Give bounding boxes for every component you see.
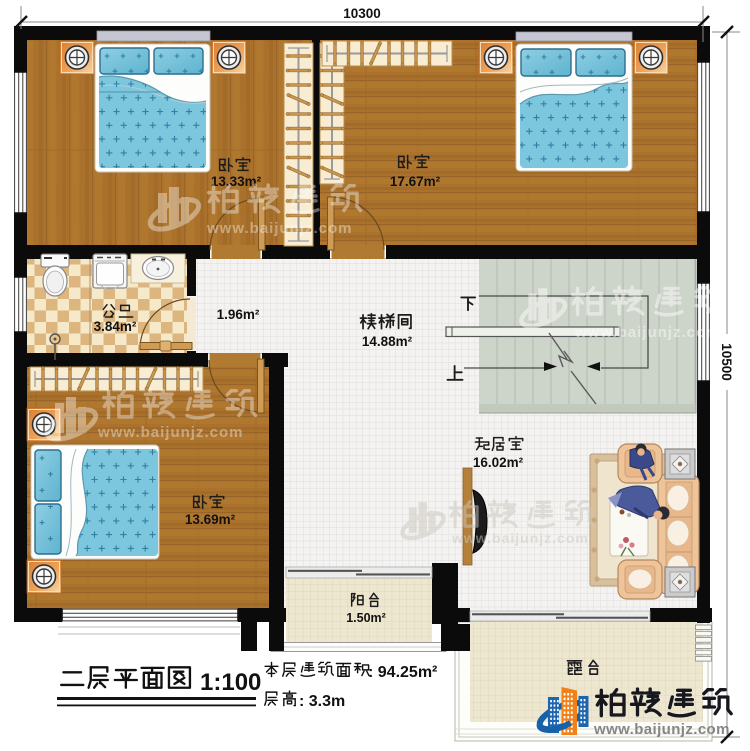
svg-text:14.88m²: 14.88m² xyxy=(362,334,413,349)
svg-text:16.02m²: 16.02m² xyxy=(473,455,524,470)
svg-text:: 94.25m²: : 94.25m² xyxy=(368,664,437,681)
svg-text:3.84m²: 3.84m² xyxy=(94,319,137,334)
svg-text:17.67m²: 17.67m² xyxy=(390,174,441,189)
svg-text:1.96m²: 1.96m² xyxy=(217,307,260,322)
svg-text:www.baijunjz.com: www.baijunjz.com xyxy=(206,220,352,237)
svg-text:www.baijunjz.com: www.baijunjz.com xyxy=(593,721,730,738)
svg-text:13.69m²: 13.69m² xyxy=(185,512,236,527)
svg-text:www.baijunjz.com: www.baijunjz.com xyxy=(574,324,720,341)
svg-text:10300: 10300 xyxy=(343,6,381,21)
svg-text:1:100: 1:100 xyxy=(200,669,261,696)
svg-text:10500: 10500 xyxy=(719,343,734,381)
svg-text:www.baijunjz.com: www.baijunjz.com xyxy=(451,530,589,546)
svg-text:www.baijunjz.com: www.baijunjz.com xyxy=(97,424,243,441)
svg-text:: 3.3m: : 3.3m xyxy=(299,693,345,710)
svg-text:1.50m²: 1.50m² xyxy=(346,611,386,625)
